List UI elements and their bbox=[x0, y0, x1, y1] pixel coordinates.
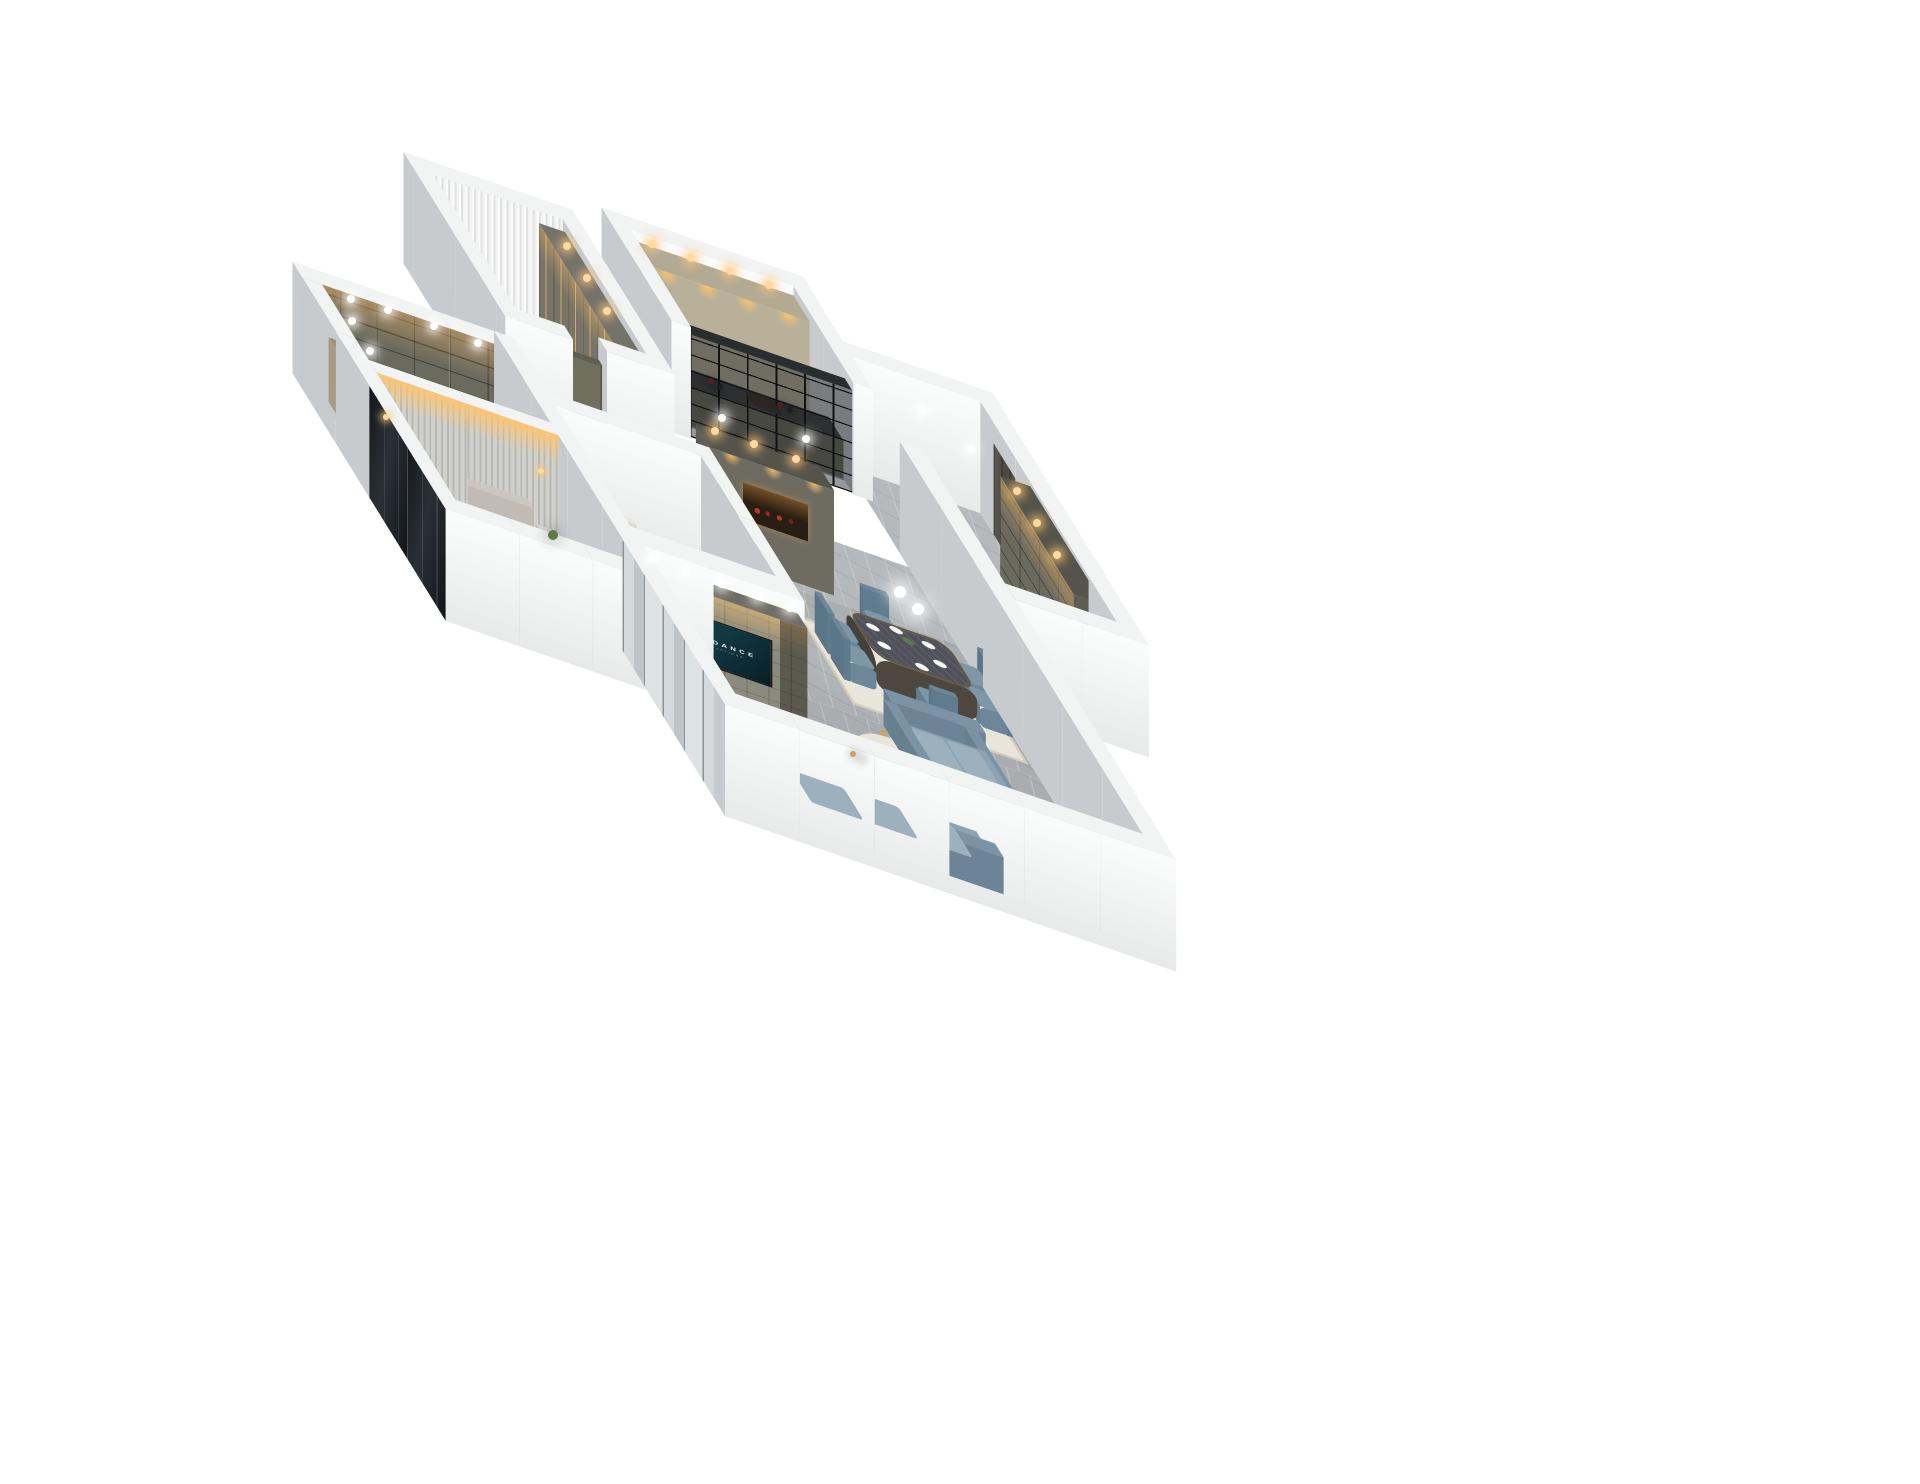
cabinet-light-icon bbox=[603, 307, 611, 315]
bookcase-light-icon bbox=[1013, 487, 1021, 495]
downlight-icon bbox=[366, 347, 374, 355]
screenshot-canvas: SKYDANCEPRODUCTIONS bbox=[0, 0, 1920, 1484]
plant-nightstand-icon bbox=[548, 530, 558, 540]
pendant-globe-1-icon bbox=[894, 586, 906, 598]
downlight-icon bbox=[348, 317, 356, 325]
decanter-tray-1-icon bbox=[850, 751, 856, 757]
downlight-icon bbox=[430, 322, 438, 330]
tvwall-light-icon bbox=[786, 604, 794, 612]
corridor-light-icon bbox=[967, 445, 975, 453]
apartment-3d-render: SKYDANCEPRODUCTIONS bbox=[0, 0, 1920, 1484]
cabinet-light-icon bbox=[563, 242, 571, 250]
chair-dining-w2-back-south-face bbox=[844, 638, 851, 682]
wall-living-south-a-1-west-face bbox=[714, 686, 725, 816]
hall-light-icon bbox=[718, 414, 726, 422]
wall-westwing-north-1-west-face bbox=[293, 262, 303, 390]
wall-kitchen-east-2-south-face bbox=[853, 383, 873, 502]
bottle-wine-2-icon bbox=[777, 402, 783, 408]
sconce-master-2-icon bbox=[538, 468, 544, 474]
wall-dressing-north-1-west-face bbox=[403, 152, 413, 280]
cabinet-light-icon bbox=[792, 455, 800, 463]
decanter-tray-2-icon bbox=[859, 756, 865, 762]
cabinet-light-icon bbox=[711, 427, 719, 435]
cabinet-light-icon bbox=[583, 274, 591, 282]
bookcase-light-icon bbox=[1033, 519, 1041, 527]
wall-westwing-west-master-2-south-face bbox=[446, 509, 466, 628]
corridor-light-icon bbox=[918, 407, 926, 415]
downlight-icon bbox=[347, 295, 355, 303]
hall-light-icon bbox=[802, 435, 810, 443]
